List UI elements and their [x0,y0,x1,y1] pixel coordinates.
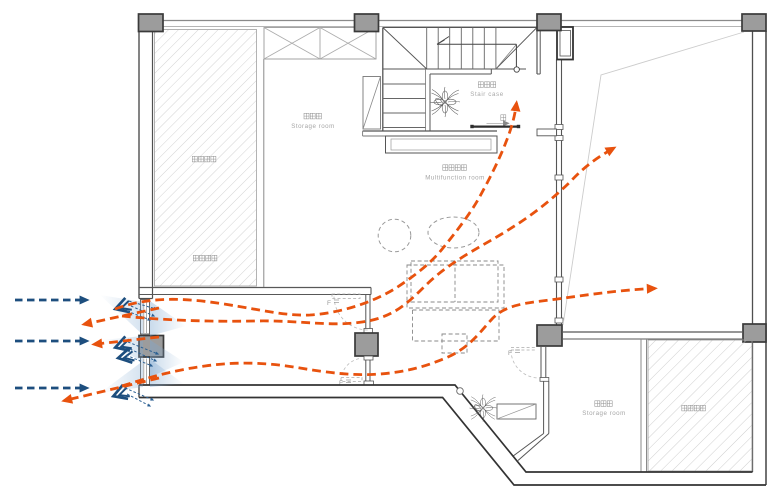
svg-text:F: F [508,350,512,357]
svg-text:Stair case: Stair case [470,91,504,98]
svg-text:Storage room: Storage room [582,410,626,417]
svg-text:F: F [339,380,343,387]
svg-text:Multifunction room: Multifunction room [425,175,485,182]
svg-text:F: F [327,300,331,307]
svg-text:Storage room: Storage room [291,123,335,130]
